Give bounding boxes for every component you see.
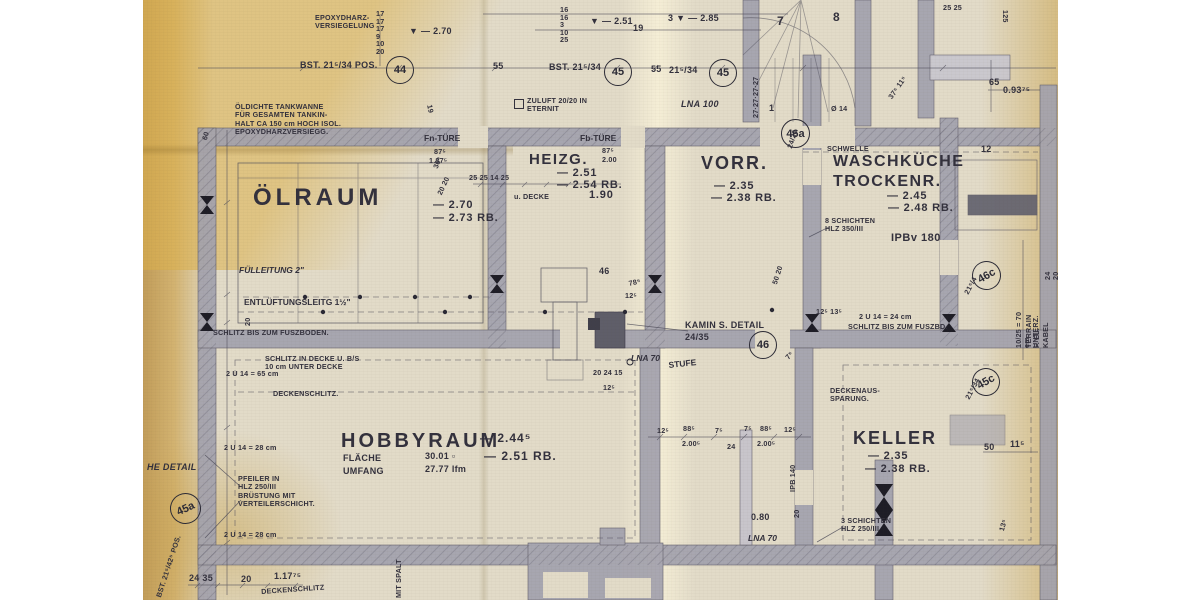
dim-k5: 24 xyxy=(727,443,735,451)
note-lna70-b: LNA 70 xyxy=(748,533,777,543)
pos-45b-label: 21⁵/34 xyxy=(669,65,698,76)
dim-k4: 2.00⁵ xyxy=(682,440,700,448)
door-fn-label: Fn-TÜRE xyxy=(424,133,460,143)
hobbyraum-level-rb: — 2.51 RB. xyxy=(484,449,557,463)
note-u14-28-a: 2 U 14 = 28 cm xyxy=(224,444,277,452)
note-fuelleitung: FÜLLEITUNG 2" xyxy=(239,265,304,275)
note-schlitz-fussboden: SCHLITZ BIS ZUM FUSZBODEN. xyxy=(213,329,329,337)
note-u14-24: 2 U 14 = 24 cm xyxy=(859,313,912,321)
dim-0-80: 0.80 xyxy=(751,512,770,523)
note-3-schichten: 3 SCHICHTEN HLZ 250/III xyxy=(841,517,891,534)
dim-55-b: 55 xyxy=(651,64,662,75)
vorr-level-rb: — 2.38 RB. xyxy=(711,192,776,205)
oelraum-level-rb: — 2.73 RB. xyxy=(433,212,498,225)
note-zuluft: ZULUFT 20/20 IN ETERNIT xyxy=(527,97,587,114)
note-u14-65: 2 U 14 = 65 cm xyxy=(226,370,279,378)
room-label-oelraum: ÖLRAUM xyxy=(253,184,382,212)
dim-k9: 2.00⁵ xyxy=(757,440,775,448)
note-tank: ÖLDICHTE TANKWANNE FÜR GESAMTEN TANKIN- … xyxy=(235,103,341,137)
dim-column-a: 17 17 17 9 10 20 xyxy=(376,10,384,55)
note-lna100: LNA 100 xyxy=(681,99,719,110)
note-deckenschlitz-a: DECKENSCHLITZ. xyxy=(273,390,339,398)
pos-circle-45a: 45 xyxy=(604,58,632,86)
level-marker-285: 3 ▼ — 2.85 xyxy=(668,13,719,24)
room-label-vorr: VORR. xyxy=(701,153,768,174)
note-ipbv-180: IPBv 180 xyxy=(891,232,941,245)
waschkueche-level-rb: — 2.48 RB. xyxy=(888,202,953,215)
note-8-schichten: 8 SCHICHTEN HLZ 350/III xyxy=(825,217,875,234)
dim-50: 50 xyxy=(984,442,995,453)
note-u-decke: u. DECKE xyxy=(514,193,549,201)
note-schlitz-decke: SCHLITZ IN DECKE U. B/S 10 cm UNTER DECK… xyxy=(265,355,359,372)
note-epoxy-sealing: EPOXYDHARZ- VERSIEGELUNG xyxy=(315,14,375,31)
room-label-keller: KELLER xyxy=(853,428,937,449)
door-fb-label: Fb-TÜRE xyxy=(580,133,616,143)
room-label-waschkueche: WASCHKÜCHE xyxy=(833,153,964,172)
level-marker-251: ▼ — 2.51 xyxy=(590,16,633,27)
dim-k2: 88⁵ xyxy=(683,425,695,433)
pos-circle-44: 44 xyxy=(386,56,414,84)
dim-k6: 7⁵ xyxy=(744,425,752,433)
pos-circle-45b: 45 xyxy=(709,59,737,87)
dim-125-135: 12⁵ 13⁵ xyxy=(816,308,842,316)
note-siehe-detail: HE DETAIL xyxy=(147,462,197,473)
zuluft-vent-icon xyxy=(514,99,524,109)
dim-k7: 88⁵ xyxy=(760,425,772,433)
hobbyraum-level: — 2.44⁵ xyxy=(480,431,531,445)
stair-step-7: 7 xyxy=(777,14,784,28)
hobbyraum-umfang-label: UMFANG xyxy=(343,466,384,477)
dim-row-stufe: 20 24 15 xyxy=(593,369,623,377)
note-terrain-kabel: TERRAIN F. EL. KABEL xyxy=(1025,315,1050,348)
dim-115: 11⁵ xyxy=(1010,439,1025,450)
kamin-size-24-35: 24/35 xyxy=(685,332,709,343)
dim-125-vertical: 125 xyxy=(1001,10,1009,23)
dim-65: 65 xyxy=(989,77,1000,88)
dim-20-vertical-2: 20 xyxy=(793,510,801,518)
dim-24-20-vertical: 24 20 xyxy=(1044,266,1058,280)
room-label-hobbyraum: HOBBYRAUM xyxy=(341,430,500,454)
dim-0-9375: 0.93⁷⁵ xyxy=(1003,85,1030,96)
note-kamin-detail: KAMIN S. DETAIL xyxy=(685,320,764,331)
note-u14-28-b: 2 U 14 = 28 cm xyxy=(224,531,277,539)
dim-k3: 7⁵ xyxy=(715,427,723,435)
dim-25-25: 25 25 xyxy=(943,4,962,12)
dim-55-a: 55 xyxy=(493,61,504,72)
dim-row-oelraum: 25 25 14 25 xyxy=(469,174,509,182)
dim-125-a: 12⁵ xyxy=(625,292,637,300)
note-mit-spalt: MIT SPALT xyxy=(395,559,403,598)
dim-stair-treads: 27·27·27·27 xyxy=(752,77,760,118)
dim-dia-14: Ø 14 xyxy=(831,105,847,113)
dim-12: 12 xyxy=(981,144,992,155)
dim-46: 46 xyxy=(599,266,610,277)
pos-45a-label: BST. 21⁵/34 xyxy=(549,62,601,73)
page-background: EPOXYDHARZ- VERSIEGELUNG 17 17 17 9 10 2… xyxy=(0,0,1200,600)
hobbyraum-flaeche-value: 30.01 ▫ xyxy=(425,451,455,462)
pos-44-label: BST. 21⁵/34 POS. xyxy=(300,60,378,71)
note-ipb-140: IPB 140 xyxy=(789,465,797,492)
note-schlitz-fussbd: SCHLITZ BIS ZUM FUSZBD. xyxy=(848,323,948,331)
note-deckenaussparung: DECKENAUS- SPARUNG. xyxy=(830,387,880,404)
keller-level-rb: — 2.38 RB. xyxy=(865,463,930,476)
blueprint-photo: EPOXYDHARZ- VERSIEGELUNG 17 17 17 9 10 2… xyxy=(143,0,1058,600)
note-lna70-a: LNA 70 xyxy=(631,353,660,363)
heizg-width-190: 1.90 xyxy=(589,189,614,202)
oelraum-level: — 2.70 xyxy=(433,199,473,212)
dim-19-rotated: 19 xyxy=(425,104,435,114)
keller-level: — 2.35 xyxy=(868,450,908,463)
dim-k8: 12⁵ xyxy=(784,426,796,434)
dim-20-b: 20 xyxy=(241,574,252,585)
dim-1-1775: 1.17⁷⁵ xyxy=(274,571,301,582)
hobbyraum-umfang-value: 27.77 lfm xyxy=(425,464,466,475)
stair-step-8: 8 xyxy=(833,10,840,24)
stair-step-1: 1 xyxy=(769,103,774,114)
note-entlueftung: ENTLÜFTUNGSLEITG 1½" xyxy=(244,297,351,307)
hobbyraum-flaeche-label: FLÄCHE xyxy=(343,453,381,464)
dim-19: 19 xyxy=(633,23,644,34)
level-marker-270: ▼ — 2.70 xyxy=(409,26,452,37)
dim-24-35: 24 35 xyxy=(189,573,213,584)
pos-circle-46: 46 xyxy=(749,331,777,359)
dim-column-b: 16 16 3 10 25 xyxy=(560,6,568,44)
note-pfeiler: PFEILER IN HLZ 250/III BRÜSTUNG MIT VERT… xyxy=(238,475,315,509)
dim-20-vertical: 20 xyxy=(244,318,252,326)
dim-k1: 12⁵ xyxy=(657,427,669,435)
dim-125-b: 12⁵ xyxy=(603,384,615,392)
door-fb-height: 2.00 xyxy=(602,156,617,164)
